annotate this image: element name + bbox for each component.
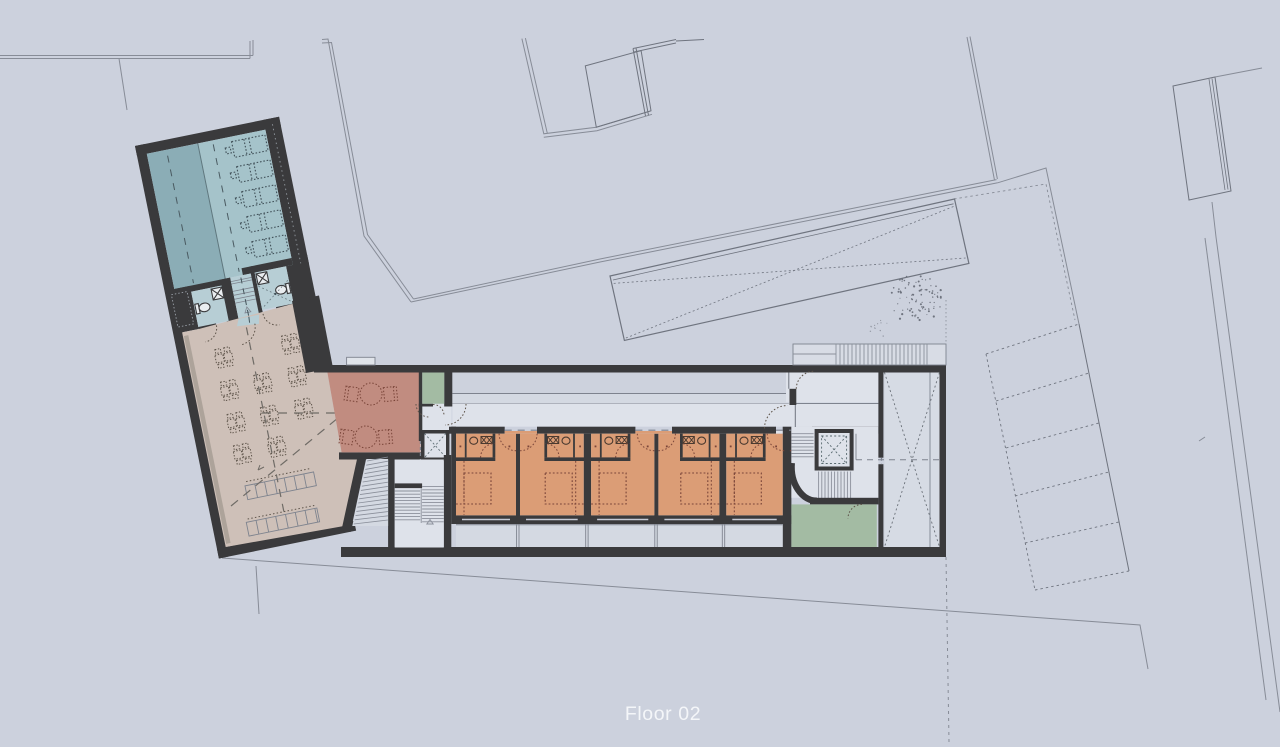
svg-text:Floor 02: Floor 02: [625, 703, 701, 725]
